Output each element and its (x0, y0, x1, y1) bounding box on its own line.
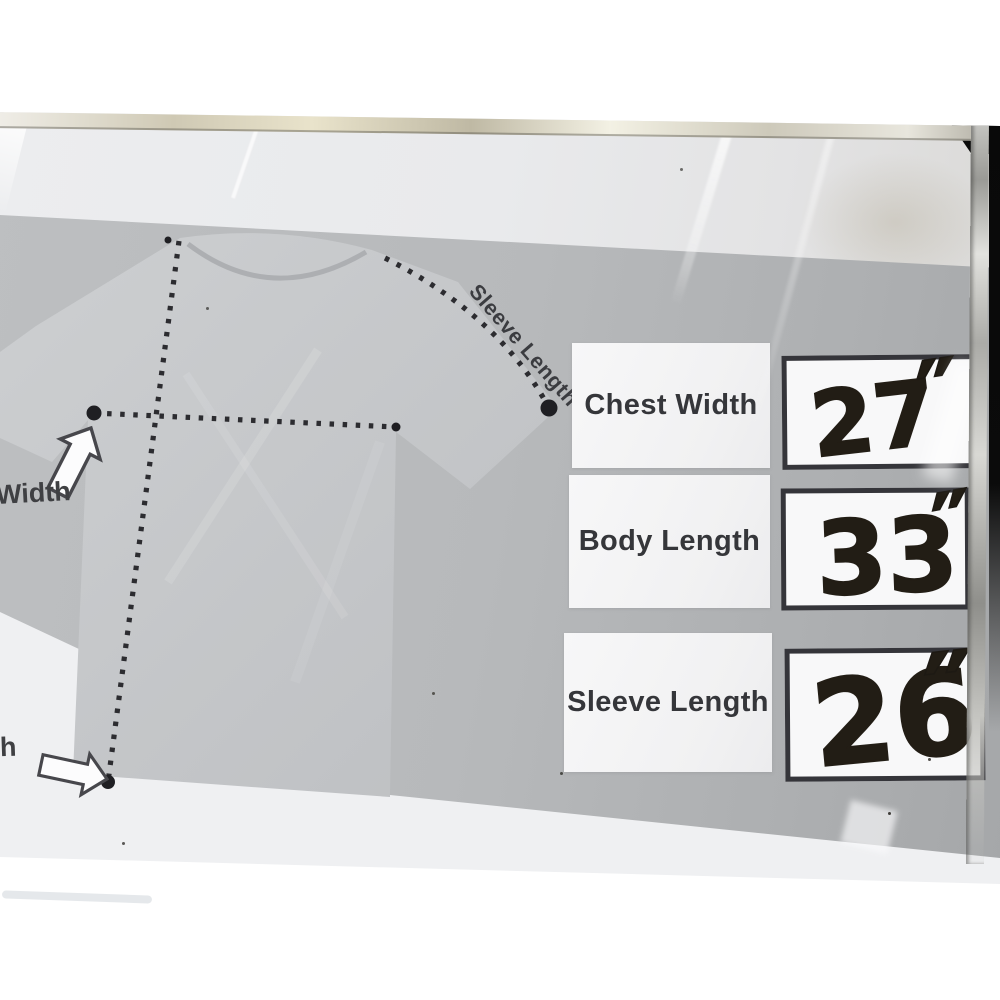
body-length-label-box: Body Length (569, 475, 770, 608)
framed-sign: Sleeve Length Width h Chest Width 27 ″ B… (0, 112, 1000, 884)
sleeve-length-label-box: Sleeve Length (564, 633, 772, 772)
photo-of-framed-size-chart: Sleeve Length Width h Chest Width 27 ″ B… (0, 0, 1000, 1000)
body-length-partial-label: h (0, 734, 17, 762)
shoulder-dot (165, 237, 172, 244)
chest-width-label: Chest Width (584, 389, 757, 422)
sleeve-cuff-dot (541, 400, 558, 417)
body-length-label: Body Length (579, 525, 761, 558)
photo-bottom-edge-streak (2, 890, 152, 903)
body-length-value-box: 33 ″ (781, 488, 971, 611)
chest-width-label-box: Chest Width (572, 343, 770, 468)
chest-width-value-box: 27 ″ (782, 354, 981, 470)
backdrop-right-strip (989, 112, 1000, 732)
chest-right-dot (392, 423, 401, 432)
sleeve-length-value-box: 26 ″ (785, 647, 986, 781)
chest-left-dot (87, 406, 102, 421)
sleeve-length-label: Sleeve Length (567, 686, 769, 719)
chest-width-partial-label: Width (0, 478, 71, 509)
